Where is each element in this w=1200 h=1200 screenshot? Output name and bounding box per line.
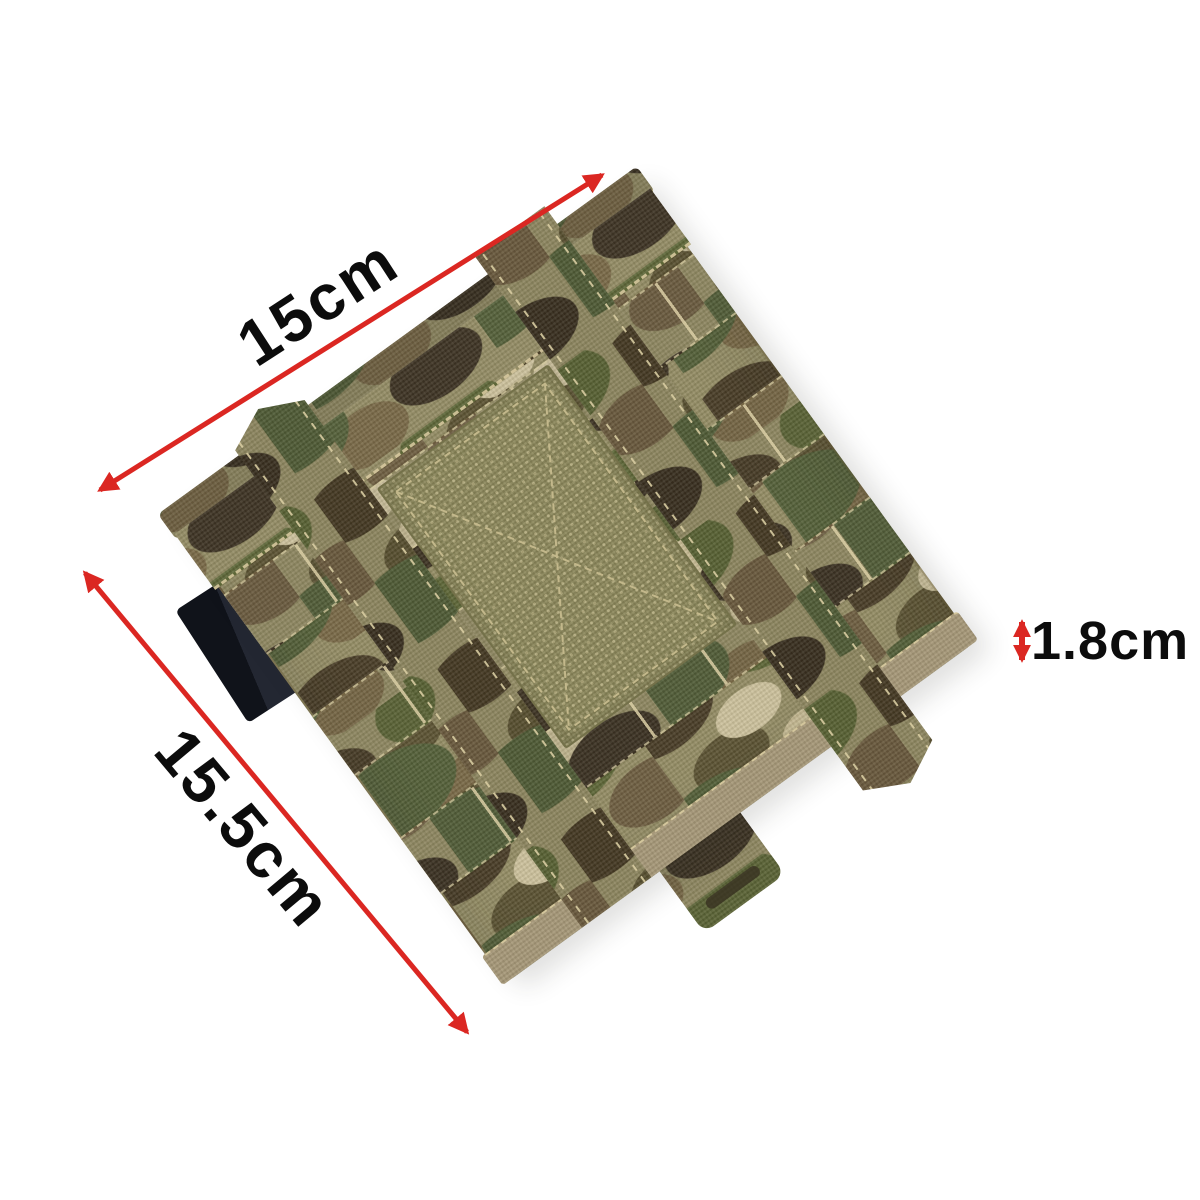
height-dimension-label: 15.5cm: [140, 714, 348, 942]
bottom-tab-slot: [704, 864, 763, 911]
product-photo-scene: 15cm 15.5cm 1.8cm: [0, 0, 1200, 1200]
thickness-dimension-label: 1.8cm: [1031, 610, 1189, 672]
